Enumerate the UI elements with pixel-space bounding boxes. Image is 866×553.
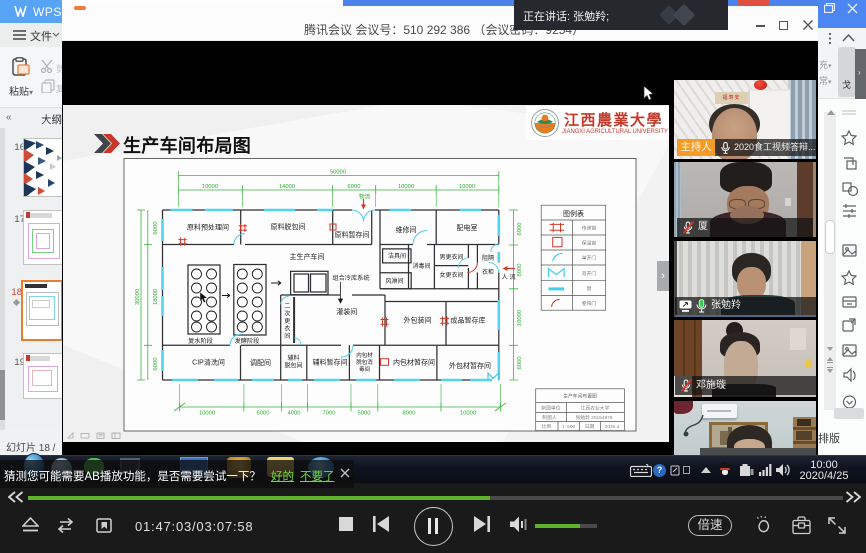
svg-text:脱包消: 脱包消 — [356, 358, 373, 366]
svg-text:消毒间: 消毒间 — [412, 262, 430, 270]
svg-text:8000: 8000 — [517, 264, 523, 277]
svg-text:内包材: 内包材 — [356, 351, 373, 359]
svg-text:10000: 10000 — [460, 411, 476, 417]
svg-text:洁具间: 洁具间 — [388, 252, 406, 260]
svg-text:毒间: 毒间 — [359, 365, 370, 373]
svg-text:二: 二 — [284, 304, 290, 310]
svg-text:制图人: 制图人 — [542, 414, 557, 421]
svg-text:6000: 6000 — [517, 223, 523, 236]
svg-text:1: 500: 1: 500 — [562, 424, 576, 430]
svg-text:制图单位: 制图单位 — [541, 405, 560, 412]
svg-text:人 流: 人 流 — [502, 273, 516, 281]
svg-text:张勉羚 20154978: 张勉羚 20154978 — [575, 414, 612, 421]
svg-text:10000: 10000 — [398, 184, 414, 190]
svg-text:30000: 30000 — [135, 289, 141, 305]
svg-text:2020.4: 2020.4 — [605, 424, 620, 430]
svg-text:衣柜: 衣柜 — [482, 268, 494, 276]
svg-text:原料脱包间: 原料脱包间 — [271, 222, 306, 231]
svg-text:间: 间 — [284, 332, 290, 340]
svg-text:维修间: 维修间 — [396, 225, 417, 234]
svg-text:辅料: 辅料 — [287, 354, 299, 362]
svg-text:风淋间: 风淋间 — [385, 277, 403, 285]
svg-text:原料暂存间: 原料暂存间 — [335, 230, 370, 239]
svg-text:原料预处理间: 原料预处理间 — [187, 223, 229, 232]
svg-text:10000: 10000 — [199, 411, 215, 417]
svg-text:保温窗: 保温窗 — [582, 240, 597, 247]
svg-text:脱包间: 脱包间 — [284, 362, 302, 370]
svg-text:10000: 10000 — [459, 184, 475, 190]
svg-text:复水阶段: 复水阶段 — [188, 337, 213, 345]
svg-text:10000: 10000 — [202, 184, 218, 190]
svg-text:成品暂存库: 成品暂存库 — [451, 316, 486, 325]
svg-text:江西农业大学: 江西农业大学 — [581, 405, 610, 412]
svg-text:6000: 6000 — [517, 357, 523, 370]
svg-text:主生产车间: 主生产车间 — [290, 252, 325, 261]
svg-text:男更衣间: 男更衣间 — [439, 253, 463, 261]
svg-text:组合冷库系统: 组合冷库系统 — [332, 274, 369, 282]
svg-text:6000: 6000 — [153, 358, 159, 371]
svg-text:生产车间布置图: 生产车间布置图 — [563, 393, 597, 400]
svg-text:50000: 50000 — [330, 170, 346, 176]
svg-text:物流: 物流 — [359, 193, 371, 201]
svg-text:女更衣间: 女更衣间 — [439, 271, 463, 279]
svg-text:传递窗: 传递窗 — [582, 225, 597, 232]
svg-text:外包装间: 外包装间 — [404, 316, 432, 325]
svg-text:发酵阶段: 发酵阶段 — [235, 337, 260, 345]
svg-text:次: 次 — [284, 310, 290, 318]
svg-text:18000: 18000 — [153, 289, 159, 305]
svg-text:CIP清洗间: CIP清洗间 — [192, 358, 225, 367]
svg-text:8000: 8000 — [403, 411, 416, 417]
svg-text:6000: 6000 — [348, 184, 361, 190]
svg-text:4000: 4000 — [288, 411, 301, 417]
svg-text:比例: 比例 — [542, 423, 552, 430]
svg-text:阻隔: 阻隔 — [482, 254, 494, 262]
svg-text:5000: 5000 — [358, 411, 371, 417]
svg-text:日期: 日期 — [585, 424, 595, 430]
svg-text:调配间: 调配间 — [250, 358, 271, 367]
svg-text:双开门: 双开门 — [582, 270, 597, 277]
svg-text:衣: 衣 — [284, 325, 290, 333]
svg-text:7000: 7000 — [323, 411, 336, 417]
svg-text:6000: 6000 — [257, 411, 270, 417]
svg-text:外包材暂存间: 外包材暂存间 — [449, 361, 491, 370]
svg-text:辅料暂存间: 辅料暂存间 — [313, 358, 348, 367]
svg-text:14000: 14000 — [279, 184, 295, 190]
svg-text:窗: 窗 — [587, 285, 592, 292]
svg-text:卷帘门: 卷帘门 — [582, 300, 597, 307]
svg-text:单开门: 单开门 — [582, 255, 597, 262]
svg-text:内包材暂存间: 内包材暂存间 — [393, 358, 435, 367]
svg-text:6000: 6000 — [153, 222, 159, 235]
svg-text:图例表: 图例表 — [563, 209, 584, 218]
svg-text:配电室: 配电室 — [457, 223, 478, 232]
svg-text:10000: 10000 — [517, 310, 523, 326]
svg-text:灌装间: 灌装间 — [336, 307, 357, 316]
svg-text:更: 更 — [284, 318, 290, 325]
